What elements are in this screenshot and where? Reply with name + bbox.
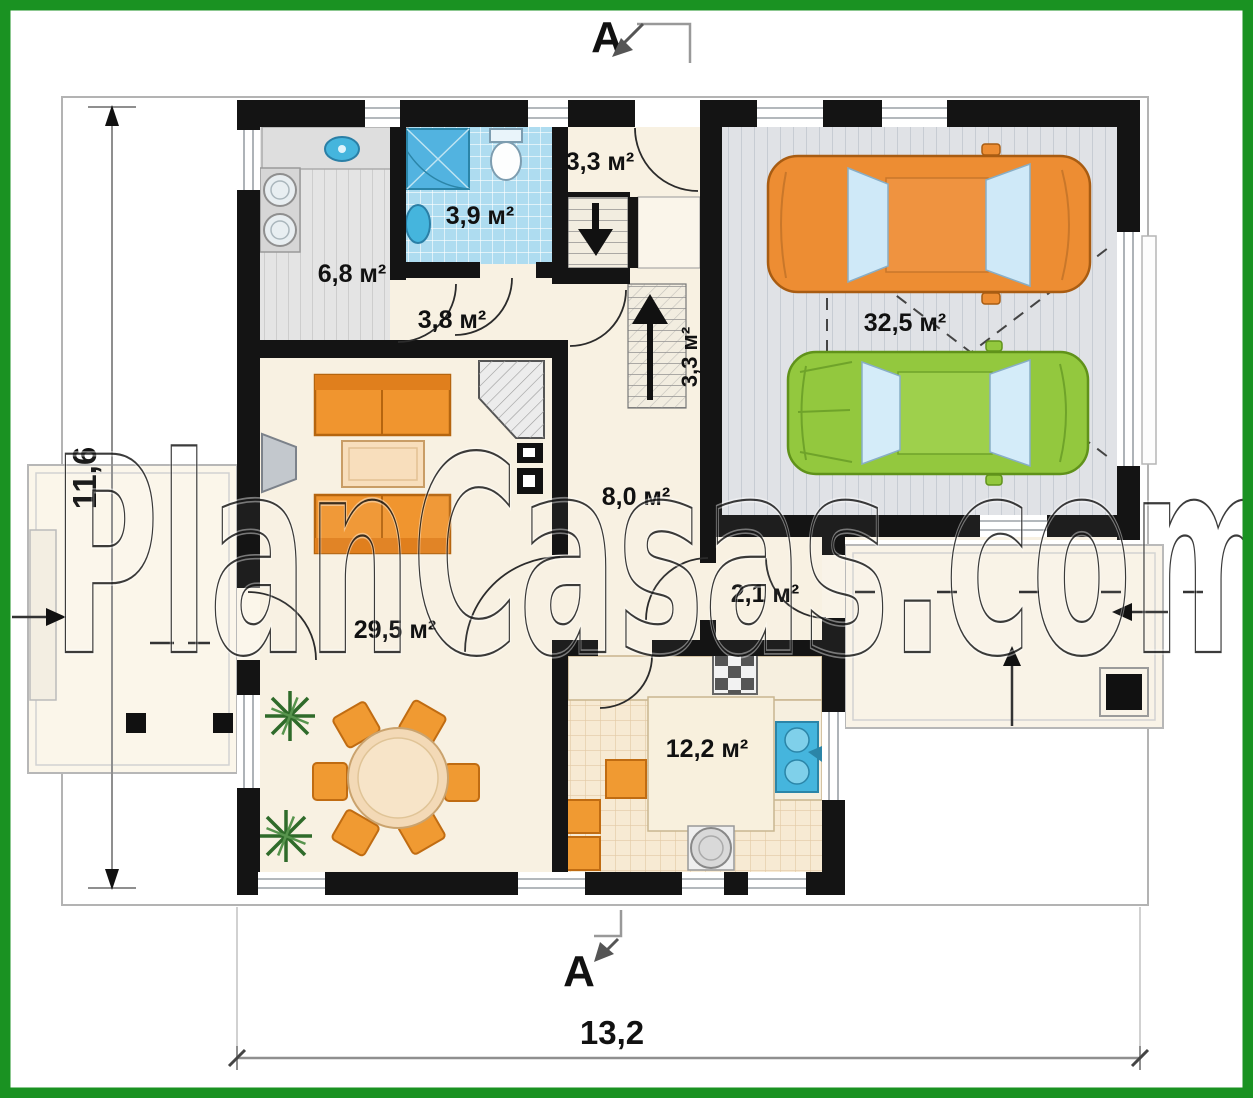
window [258, 872, 325, 895]
bathroom-sink [406, 205, 430, 243]
dining-chair [313, 763, 347, 800]
window [518, 872, 585, 895]
dining-chair [445, 764, 479, 801]
section-marker-bottom: A [563, 910, 621, 996]
kitchen-stool [566, 837, 600, 870]
washing-machine [264, 174, 296, 206]
window [748, 872, 806, 895]
kitchen-sink [776, 722, 822, 792]
window [682, 872, 724, 895]
window [528, 100, 568, 127]
watermark: PlanCasas.com PlanCasas.com [52, 401, 1253, 717]
floor-plan-image: 3,3 м² 3,9 м² 6,8 м² 3,8 м² 3,3 м² 8,0 м… [0, 0, 1253, 1098]
toilet-tank [490, 129, 522, 142]
room-label-staircase: 3,3 м² [677, 327, 702, 387]
room-label-kitchen: 12,2 м² [666, 735, 748, 763]
stair-landing [638, 197, 700, 268]
room-label-bathroom: 3,9 м² [446, 202, 515, 230]
kitchen-appliance-round [688, 826, 734, 870]
window [882, 100, 947, 127]
window [237, 130, 260, 190]
section-letter-bottom: A [563, 947, 595, 996]
kitchen-island [648, 697, 774, 831]
window [822, 712, 845, 800]
washing-machine [264, 214, 296, 246]
car-rear-window [848, 168, 888, 282]
entrance-door-opening [635, 100, 700, 127]
section-marker-top: A [591, 13, 690, 63]
watermark-text: PlanCasas.com [52, 401, 1253, 717]
toilet-bowl [491, 142, 521, 180]
car-windshield [986, 164, 1030, 286]
window [365, 100, 400, 127]
window [757, 100, 823, 127]
room-label-vestibule: 3,3 м² [566, 148, 635, 176]
room-label-garage: 32,5 м² [864, 309, 946, 337]
dim-width-label: 13,2 [580, 1014, 644, 1051]
car-orange [768, 144, 1090, 304]
floor-plan-svg: 3,3 м² 3,9 м² 6,8 м² 3,8 м² 3,3 м² 8,0 м… [0, 0, 1253, 1098]
kitchen-stool [606, 760, 646, 798]
room-label-utility: 6,8 м² [318, 260, 387, 288]
room-label-hallway: 3,8 м² [418, 306, 487, 334]
kitchen-stool [566, 800, 600, 833]
dimension-width: 13,2 [229, 907, 1148, 1070]
